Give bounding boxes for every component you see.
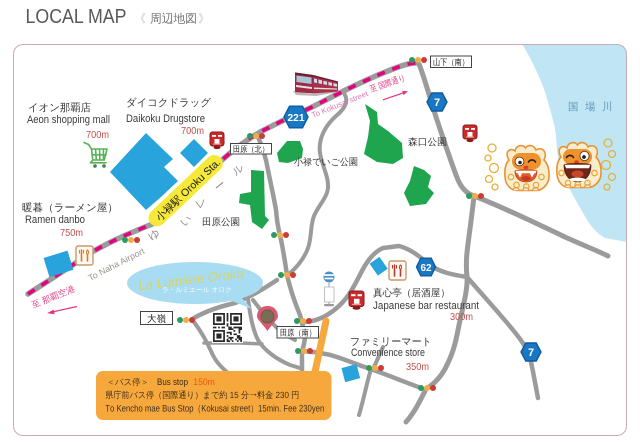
svg-text:LOCAL MAP: LOCAL MAP	[26, 6, 127, 28]
svg-text:750m: 750m	[60, 227, 83, 239]
svg-text:300m: 300m	[450, 311, 473, 323]
svg-text:7: 7	[528, 347, 534, 359]
svg-text:221: 221	[288, 112, 305, 124]
svg-text:Bus stop: Bus stop	[157, 377, 188, 388]
svg-text:350m: 350m	[406, 361, 429, 373]
svg-text:Convenience store: Convenience store	[351, 347, 425, 359]
svg-text:700m: 700m	[86, 129, 109, 141]
svg-text:62: 62	[420, 263, 432, 274]
svg-text:Daikoku Drugstore: Daikoku Drugstore	[126, 113, 205, 125]
svg-text:7: 7	[434, 97, 440, 109]
svg-text:Ramen danbo: Ramen danbo	[25, 214, 85, 226]
svg-text:150m: 150m	[193, 377, 215, 388]
svg-text:700m: 700m	[181, 125, 204, 137]
svg-text:Aeon shopping mall: Aeon shopping mall	[27, 114, 110, 126]
